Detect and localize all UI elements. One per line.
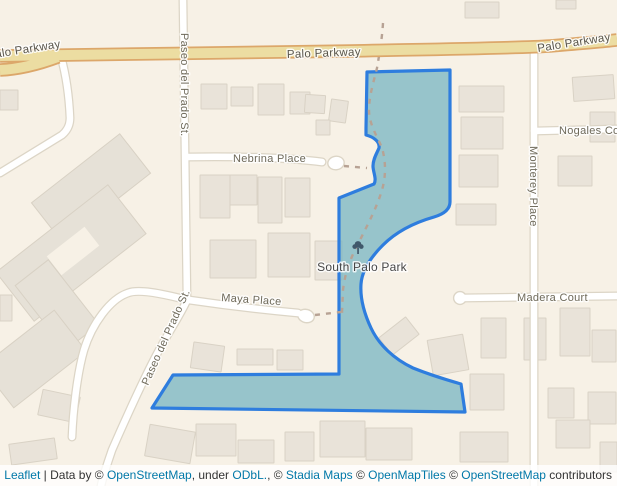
- building: [556, 420, 590, 448]
- attribution-text: contributors: [546, 468, 612, 482]
- openmaptiles-link[interactable]: OpenMapTiles: [368, 468, 446, 482]
- building: [285, 432, 314, 461]
- map-viewport[interactable]: South Palo Park Palo Parkway Palo Parkwa…: [0, 0, 617, 486]
- building: [304, 94, 325, 113]
- street-label-madera-court: Madera Court: [517, 292, 588, 304]
- street-label-nogales-court: Nogales Court: [559, 125, 617, 137]
- attribution-text: | Data by ©: [40, 468, 107, 482]
- building: [366, 428, 412, 460]
- building: [427, 334, 469, 376]
- building: [231, 87, 253, 106]
- building: [572, 75, 615, 102]
- building: [456, 204, 496, 225]
- building: [258, 84, 284, 115]
- leaflet-link[interactable]: Leaflet: [4, 468, 40, 482]
- building: [201, 84, 227, 109]
- attribution-text: , ©: [267, 468, 286, 482]
- street-label-monterey-place: Monterey Place: [527, 146, 539, 227]
- building: [9, 438, 57, 465]
- street-label-paseo-del-prado-upper: Paseo del Prado St.: [178, 33, 190, 137]
- attribution-text: , under: [192, 468, 233, 482]
- openstreetmap-link[interactable]: OpenStreetMap: [107, 468, 192, 482]
- building: [459, 155, 498, 187]
- openstreetmap-contributors-link[interactable]: OpenStreetMap: [461, 468, 546, 482]
- building: [320, 421, 365, 457]
- building: [230, 175, 257, 205]
- building: [465, 2, 499, 18]
- stadia-maps-link[interactable]: Stadia Maps: [286, 468, 353, 482]
- attribution-text: ©: [446, 468, 462, 482]
- map-canvas[interactable]: South Palo Park Palo Parkway Palo Parkwa…: [0, 0, 617, 486]
- building: [548, 388, 574, 418]
- building: [285, 178, 310, 217]
- building: [329, 99, 349, 123]
- building: [200, 175, 230, 218]
- building: [0, 295, 12, 321]
- building: [190, 342, 224, 372]
- attribution-text: ©: [353, 468, 369, 482]
- building: [588, 392, 616, 424]
- building: [258, 177, 282, 223]
- street-label-paseo-del-prado-lower: Paseo del Prado St.: [140, 288, 193, 387]
- park-name-label: South Palo Park: [317, 260, 408, 274]
- building: [470, 374, 504, 410]
- civic-complex: [0, 134, 151, 408]
- building: [145, 424, 196, 464]
- building: [560, 308, 590, 356]
- street-label-nebrina-place: Nebrina Place: [233, 153, 306, 165]
- building: [460, 432, 508, 462]
- attribution-bar: Leaflet | Data by © OpenStreetMap, under…: [0, 465, 617, 486]
- odbl-link[interactable]: ODbL.: [232, 468, 267, 482]
- building: [461, 117, 503, 149]
- building: [558, 156, 592, 186]
- building: [277, 350, 303, 370]
- building: [238, 440, 274, 463]
- building: [237, 349, 273, 365]
- building: [0, 90, 18, 110]
- building: [210, 240, 256, 278]
- building: [196, 424, 236, 456]
- building: [556, 0, 576, 9]
- building: [268, 233, 310, 277]
- street-label-palo-parkway-right: Palo Parkway: [537, 32, 612, 55]
- building: [459, 86, 504, 112]
- building: [592, 330, 616, 362]
- street-label-palo-parkway-center: Palo Parkway: [287, 46, 361, 61]
- building: [316, 120, 330, 135]
- building: [481, 318, 506, 358]
